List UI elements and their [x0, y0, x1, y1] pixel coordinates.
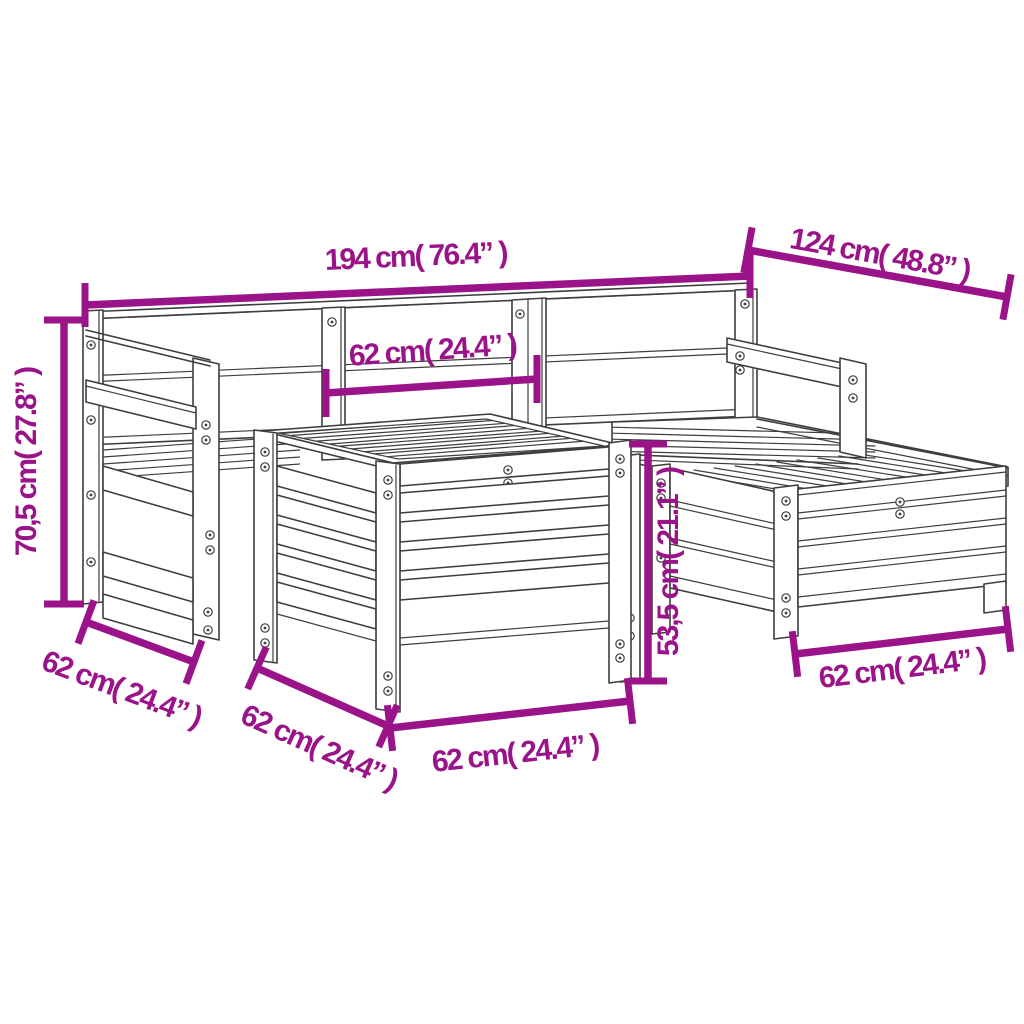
- dimension-ottoman-width-front: 62 cm( 24.4” ): [387, 678, 632, 779]
- ottoman-table-center: [254, 414, 631, 712]
- dimension-label: 62 cm( 24.4” ): [236, 698, 403, 797]
- dimension-label: 70,5 cm( 27.8” ): [10, 367, 43, 556]
- dimension-overall-depth-right: 124 cm( 48.8” ): [744, 222, 1011, 319]
- dimension-label: 53,5 cm( 21.1” ): [652, 467, 685, 656]
- dimension-footstool-width-front: 62 cm( 24.4” ): [792, 606, 1010, 695]
- dimension-overall-height: 70,5 cm( 27.8” ): [10, 320, 84, 604]
- dimension-label: 194 cm( 76.4” ): [324, 236, 508, 277]
- diagram-canvas: 194 cm( 76.4” ) 124 cm( 48.8” ) 62 cm( 2…: [0, 0, 1024, 1024]
- product-dimension-diagram: 194 cm( 76.4” ) 124 cm( 48.8” ) 62 cm( 2…: [0, 0, 1024, 1024]
- dimension-label: 62 cm( 24.4” ): [430, 728, 601, 779]
